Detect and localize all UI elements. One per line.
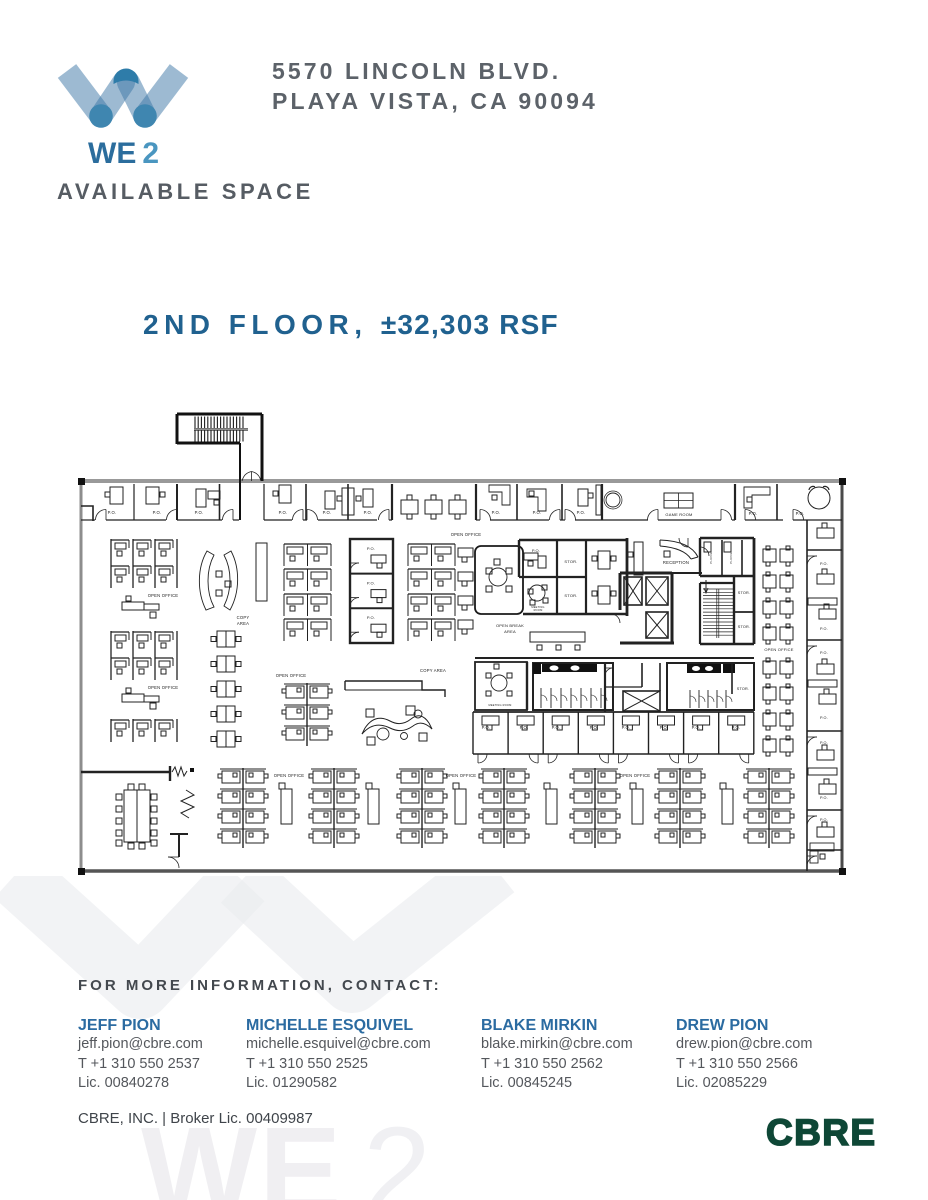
svg-text:STOR.: STOR. [564, 559, 577, 564]
svg-text:STOR.: STOR. [564, 593, 577, 598]
svg-text:P.O.: P.O. [622, 725, 631, 730]
svg-text:P.O.: P.O. [367, 581, 375, 586]
svg-text:ROOM: ROOM [534, 608, 543, 612]
svg-text:OPEN OFFICE: OPEN OFFICE [764, 647, 793, 652]
svg-text:STOR.: STOR. [738, 591, 751, 595]
svg-text:P.O.: P.O. [364, 510, 373, 515]
svg-text:OPEN OFFICE: OPEN OFFICE [274, 773, 305, 778]
svg-text:GAME ROOM: GAME ROOM [665, 512, 692, 517]
svg-text:OPEN OFFICE: OPEN OFFICE [148, 685, 179, 690]
svg-text:PHONE: PHONE [729, 552, 733, 564]
svg-text:COPY: COPY [237, 615, 250, 620]
svg-text:P.O.: P.O. [660, 725, 669, 730]
svg-text:STOR.: STOR. [738, 625, 751, 629]
svg-text:OPEN OFFICE: OPEN OFFICE [620, 773, 651, 778]
svg-text:P.O.: P.O. [532, 548, 540, 553]
svg-text:2: 2 [363, 1103, 431, 1200]
svg-text:P.O.: P.O. [820, 716, 828, 720]
svg-text:P.O.: P.O. [279, 510, 288, 515]
svg-text:OPEN OFFICE: OPEN OFFICE [276, 673, 307, 678]
svg-text:P.O.: P.O. [533, 510, 542, 515]
svg-text:OPEN OFFICE: OPEN OFFICE [148, 593, 179, 598]
svg-text:P.O.: P.O. [820, 627, 828, 631]
svg-text:P.O.: P.O. [520, 725, 529, 730]
svg-text:P.O.: P.O. [153, 510, 162, 515]
svg-text:P.O.: P.O. [796, 511, 805, 516]
svg-text:P.O.: P.O. [820, 651, 828, 655]
svg-text:OPEN BREAK: OPEN BREAK [496, 623, 524, 628]
svg-text:P.O.: P.O. [820, 796, 828, 800]
svg-text:AREA: AREA [504, 629, 516, 634]
svg-text:P.O.: P.O. [692, 725, 701, 730]
svg-text:P.O.: P.O. [367, 615, 375, 620]
svg-text:P.O.: P.O. [820, 741, 828, 745]
svg-text:P.O.: P.O. [820, 818, 828, 822]
svg-text:RECEPTION: RECEPTION [663, 560, 689, 565]
svg-text:OPEN OFFICE: OPEN OFFICE [451, 532, 482, 537]
svg-text:P.O.: P.O. [732, 725, 741, 730]
svg-text:P.O.: P.O. [749, 511, 758, 516]
svg-text:P.O.: P.O. [492, 510, 501, 515]
svg-text:P.O.: P.O. [820, 562, 828, 566]
svg-text:P.O.: P.O. [108, 510, 117, 515]
svg-text:P.O.: P.O. [577, 510, 586, 515]
svg-text:P.O.: P.O. [195, 510, 204, 515]
svg-text:PHONE: PHONE [709, 552, 713, 564]
svg-text:MEETING ROOM: MEETING ROOM [488, 703, 511, 707]
svg-text:OPEN OFFICE: OPEN OFFICE [446, 773, 477, 778]
svg-text:P.O.: P.O. [323, 510, 332, 515]
svg-text:AREA: AREA [237, 621, 249, 626]
svg-text:P.O.: P.O. [552, 725, 561, 730]
svg-text:P.O.: P.O. [590, 725, 599, 730]
svg-text:P.O.: P.O. [482, 725, 491, 730]
svg-text:COPY AREA: COPY AREA [420, 668, 446, 673]
svg-text:STOR.: STOR. [737, 687, 750, 691]
svg-text:P.O.: P.O. [367, 546, 375, 551]
